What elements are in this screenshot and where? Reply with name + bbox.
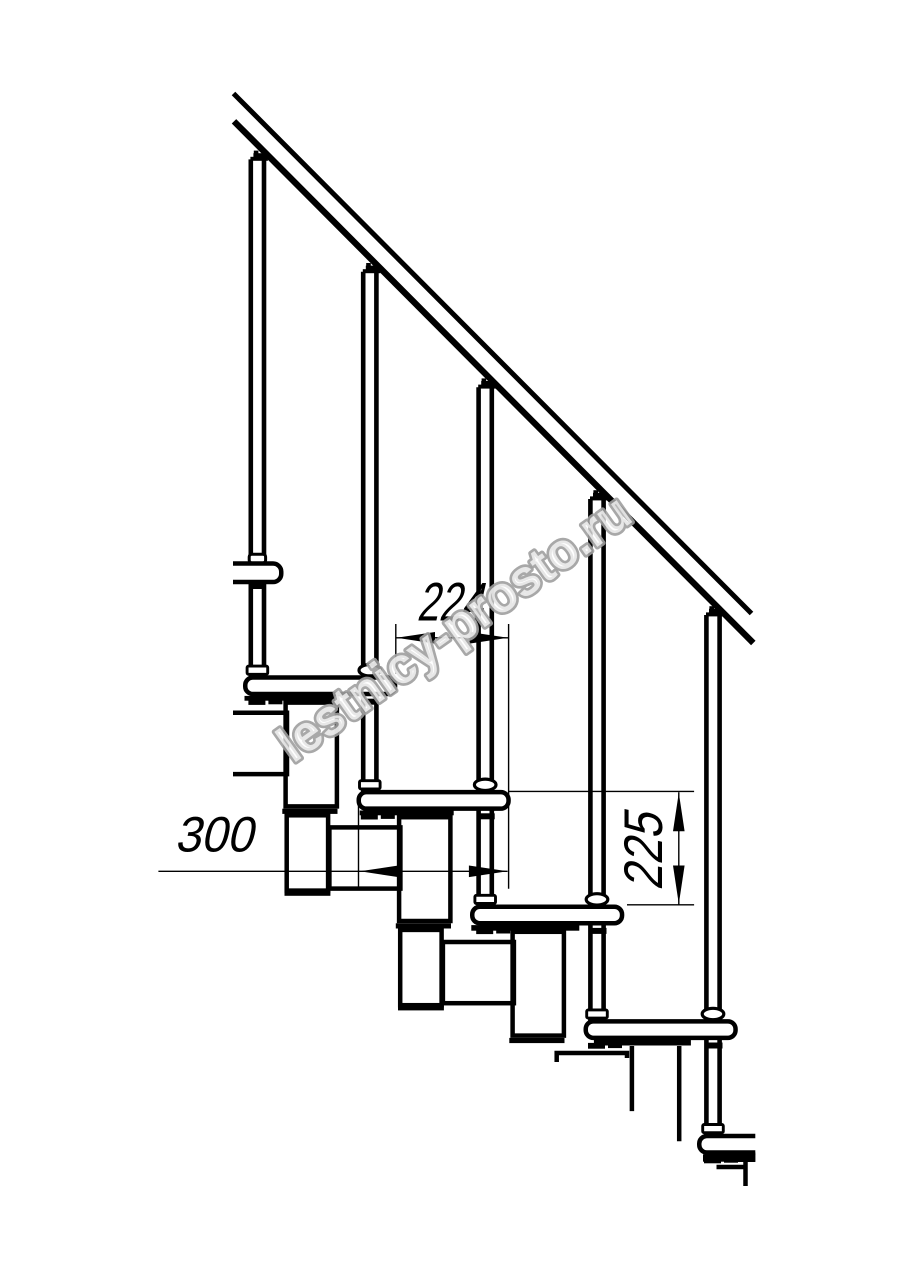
svg-text:225: 225 [613,802,674,893]
svg-text:300: 300 [172,806,263,862]
